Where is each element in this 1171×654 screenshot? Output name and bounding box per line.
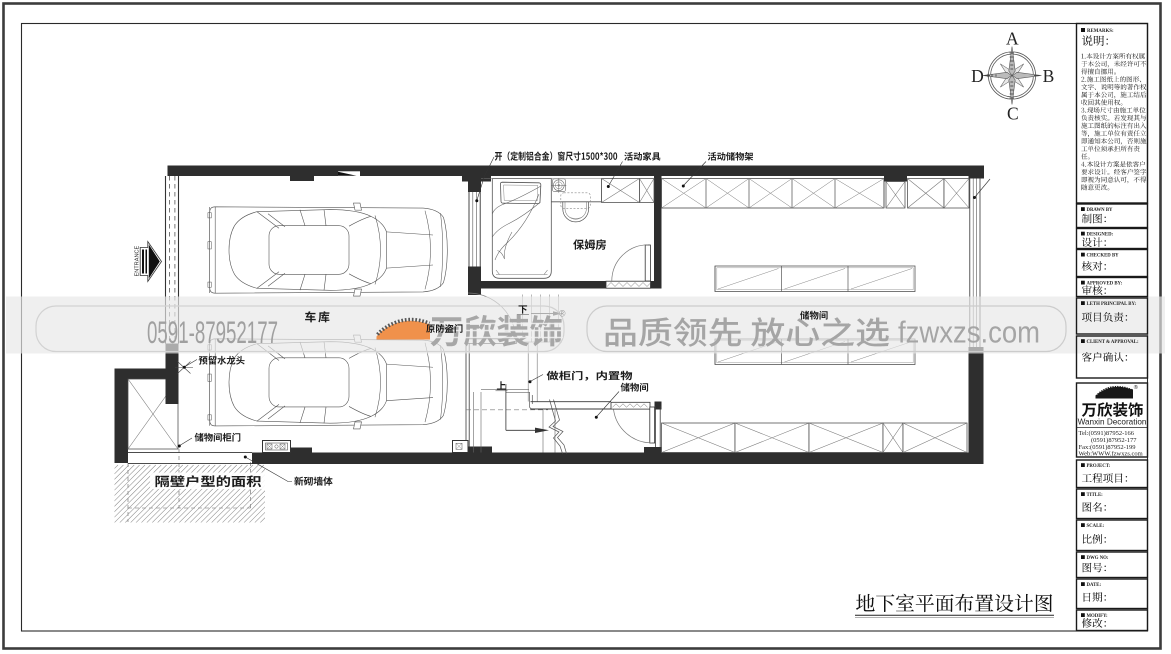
svg-text:fzwxzs.com: fzwxzs.com	[898, 315, 1040, 350]
svg-text:Wanxin Decoration: Wanxin Decoration	[1078, 418, 1147, 427]
svg-text:®: ®	[559, 309, 566, 319]
svg-text:PROJECT:: PROJECT:	[1087, 464, 1111, 469]
svg-text:D: D	[971, 66, 984, 86]
svg-text:REMARKS:: REMARKS:	[1087, 29, 1114, 34]
svg-text:(0591)87952-177: (0591)87952-177	[1091, 437, 1137, 444]
svg-text:A: A	[1006, 29, 1019, 49]
svg-text:DESIGNED:: DESIGNED:	[1087, 232, 1114, 237]
svg-text:DATE:: DATE:	[1087, 583, 1102, 588]
svg-text:LETH PRINCIPAL BY:: LETH PRINCIPAL BY:	[1087, 302, 1137, 307]
svg-text:TITLE:: TITLE:	[1087, 493, 1104, 498]
svg-text:CLIENT & APPROVAL:: CLIENT & APPROVAL:	[1087, 340, 1139, 345]
svg-text:ENTRANCE: ENTRANCE	[135, 245, 141, 276]
svg-text:®: ®	[1134, 384, 1138, 391]
svg-text:Web:WWW.fzwxzs.com: Web:WWW.fzwxzs.com	[1079, 451, 1143, 458]
svg-text:B: B	[1043, 66, 1055, 86]
svg-text:C: C	[1007, 104, 1019, 124]
svg-text:CHECKED BY: CHECKED BY	[1087, 253, 1120, 258]
svg-text:APPROVED BY:: APPROVED BY:	[1087, 281, 1123, 286]
svg-text:DRAWN BY: DRAWN BY	[1087, 208, 1114, 213]
svg-text:DWG NO:: DWG NO:	[1087, 556, 1109, 561]
svg-text:SCALE:: SCALE:	[1087, 524, 1105, 529]
svg-text:0591-87952177: 0591-87952177	[147, 314, 278, 350]
svg-text:Tel:(0591)87952-166: Tel:(0591)87952-166	[1079, 430, 1135, 437]
svg-text:MODIFY:: MODIFY:	[1087, 614, 1109, 619]
